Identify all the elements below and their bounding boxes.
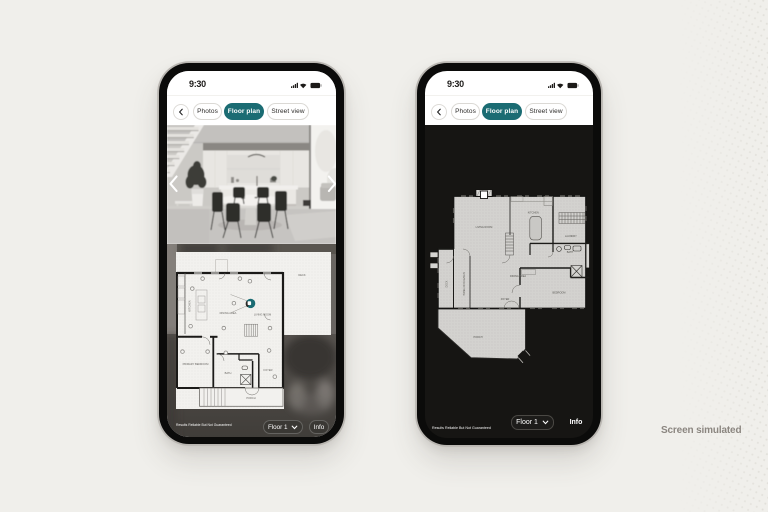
svg-text:DECK: DECK: [446, 280, 449, 287]
svg-text:DECK: DECK: [298, 273, 305, 277]
svg-text:LIVING ROOM: LIVING ROOM: [254, 313, 271, 317]
svg-text:DINING AREA: DINING AREA: [510, 275, 526, 278]
svg-text:KITCHEN: KITCHEN: [528, 212, 539, 215]
svg-text:LIVING ROOM: LIVING ROOM: [476, 226, 493, 229]
svg-text:FOYER: FOYER: [264, 368, 273, 372]
svg-text:BATH: BATH: [225, 371, 232, 375]
svg-text:FOYER: FOYER: [501, 298, 510, 301]
svg-text:KITCHEN: KITCHEN: [188, 300, 192, 312]
svg-text:HOME OFFICE/DEN: HOME OFFICE/DEN: [463, 272, 466, 296]
svg-text:DINING AREA: DINING AREA: [220, 311, 237, 315]
svg-text:PORCH: PORCH: [246, 396, 255, 400]
svg-text:BATH: BATH: [567, 251, 574, 254]
svg-text:PRIMARY BEDROOM: PRIMARY BEDROOM: [183, 362, 209, 366]
svg-text:PORCH: PORCH: [473, 336, 482, 339]
svg-text:BEDROOM: BEDROOM: [553, 292, 566, 295]
svg-text:LAUNDRY: LAUNDRY: [565, 235, 577, 238]
